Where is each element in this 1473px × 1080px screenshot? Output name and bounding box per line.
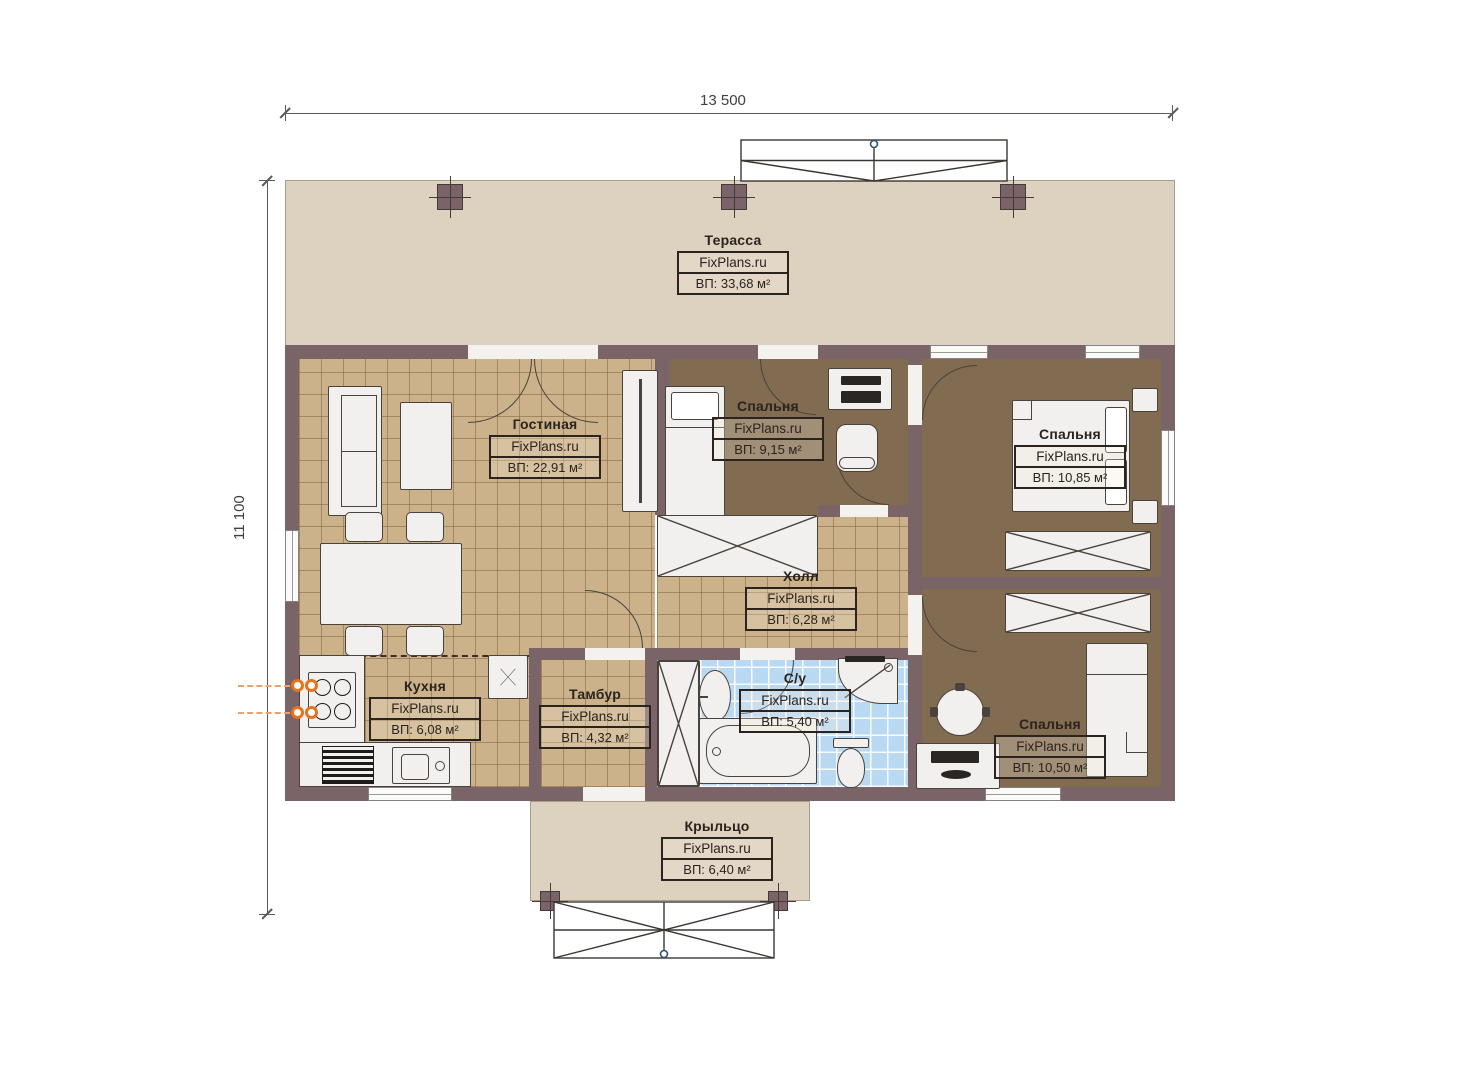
room-label-hall: Холл FixPlans.ru ВП: 6,28 м² xyxy=(736,568,866,631)
door-opening-bedroom2 xyxy=(908,365,922,425)
nightstand xyxy=(1132,388,1158,412)
window-bedroom2-top xyxy=(930,345,988,359)
room-label-bedroom1: Спальня FixPlans.ru ВП: 9,15 м² xyxy=(700,398,836,461)
room-label-bedroom2: Спальня FixPlans.ru ВП: 10,85 м² xyxy=(1002,426,1138,489)
desk-chair xyxy=(836,424,878,472)
nightstand xyxy=(1132,500,1158,524)
room-area: ВП: 33,68 м² xyxy=(679,274,787,293)
shaft-box xyxy=(657,660,700,787)
watermark: FixPlans.ru xyxy=(491,437,599,458)
watermark: FixPlans.ru xyxy=(714,419,822,440)
door-opening-living-terrace xyxy=(468,345,598,359)
porch-steps xyxy=(553,901,775,959)
wall-outer-top xyxy=(285,345,1175,359)
room-area: ВП: 10,85 м² xyxy=(1016,468,1124,487)
coffee-table xyxy=(400,402,452,490)
room-label-bedroom3: Спальня FixPlans.ru ВП: 10,50 м² xyxy=(985,716,1115,779)
toilet-bowl xyxy=(837,748,865,788)
room-name: С/у xyxy=(736,670,854,686)
room-name: Тамбур xyxy=(534,686,656,702)
dimension-height-label: 11 100 xyxy=(231,495,248,540)
door-opening-bedroom1-terrace xyxy=(758,345,818,359)
utility-connection-icon xyxy=(238,706,318,719)
watermark: FixPlans.ru xyxy=(741,691,849,712)
window-kitchen-bottom xyxy=(368,787,452,801)
wall-outer-right xyxy=(1161,345,1175,801)
door-opening-bedroom1-hall xyxy=(840,505,888,517)
room-area: ВП: 6,08 м² xyxy=(371,720,479,739)
dimension-left-line xyxy=(267,180,268,915)
dimension-width-label: 13 500 xyxy=(700,92,746,109)
wall-bedroom1-hall-stub xyxy=(888,505,908,517)
dimension-top-line xyxy=(285,113,1173,114)
room-label-tambour: Тамбур FixPlans.ru ВП: 4,32 м² xyxy=(534,686,656,749)
door-opening-porch xyxy=(583,787,645,801)
watermark: FixPlans.ru xyxy=(679,253,787,274)
dining-table xyxy=(320,543,462,625)
window-bedroom2-top-2 xyxy=(1085,345,1140,359)
room-area: ВП: 6,40 м² xyxy=(663,860,771,879)
watermark: FixPlans.ru xyxy=(747,589,855,610)
room-label-living: Гостиная FixPlans.ru ВП: 22,91 м² xyxy=(462,416,628,479)
door-opening-tambour-living xyxy=(585,648,645,660)
room-area: ВП: 22,91 м² xyxy=(491,458,599,477)
room-label-kitchen: Кухня FixPlans.ru ВП: 6,08 м² xyxy=(362,678,488,741)
room-label-bathroom: С/у FixPlans.ru ВП: 5,40 м² xyxy=(736,670,854,733)
room-name: Холл xyxy=(736,568,866,584)
wall-hall-bathroom-stub xyxy=(655,648,740,660)
terrace-steps xyxy=(740,139,1008,182)
terrace-column xyxy=(437,184,463,210)
room-name: Крыльцо xyxy=(642,818,792,834)
room-name: Спальня xyxy=(985,716,1115,732)
toilet-tank xyxy=(833,738,869,748)
door-opening-bedroom3 xyxy=(908,595,922,655)
kitchen-sink xyxy=(392,747,450,784)
room-label-terrace: Терасса FixPlans.ru ВП: 33,68 м² xyxy=(645,232,821,295)
room-label-porch: Крыльцо FixPlans.ru ВП: 6,40 м² xyxy=(642,818,792,881)
room-area: ВП: 5,40 м² xyxy=(741,712,849,731)
room-name: Спальня xyxy=(1002,426,1138,442)
room-area: ВП: 9,15 м² xyxy=(714,440,822,459)
terrace-column xyxy=(721,184,747,210)
utility-connection-icon xyxy=(238,679,318,692)
dining-chair xyxy=(406,626,444,656)
room-name: Кухня xyxy=(362,678,488,694)
dining-chair xyxy=(406,512,444,542)
door-opening-bathroom xyxy=(740,648,795,660)
wall-bedroom2-bedroom3 xyxy=(922,577,1161,589)
room-area: ВП: 6,28 м² xyxy=(747,610,855,629)
terrace-column xyxy=(1000,184,1026,210)
wardrobe xyxy=(1005,593,1151,633)
sofa xyxy=(328,386,382,516)
wall-tambour-living-stub xyxy=(541,648,585,660)
boiler-box xyxy=(488,655,528,699)
watermark: FixPlans.ru xyxy=(996,737,1104,758)
watermark: FixPlans.ru xyxy=(371,699,479,720)
room-area: ВП: 4,32 м² xyxy=(541,728,649,747)
watermark: FixPlans.ru xyxy=(663,839,771,860)
desk xyxy=(828,368,892,410)
room-name: Терасса xyxy=(645,232,821,248)
room-name: Спальня xyxy=(700,398,836,414)
window-bedroom3-bottom xyxy=(985,787,1061,801)
wall-bedroom1-hall-stub xyxy=(818,505,840,517)
kitchen-appliance xyxy=(322,746,374,784)
dining-chair xyxy=(345,626,383,656)
wardrobe xyxy=(1005,531,1151,571)
floor-plan-canvas: 13 500 11 100 xyxy=(0,0,1473,1080)
bathroom-sink xyxy=(699,670,731,722)
round-chair xyxy=(936,688,984,736)
watermark: FixPlans.ru xyxy=(541,707,649,728)
dining-chair xyxy=(345,512,383,542)
room-area: ВП: 10,50 м² xyxy=(996,758,1104,777)
watermark: FixPlans.ru xyxy=(1016,447,1124,468)
window-bedroom2-right xyxy=(1161,430,1175,506)
window-living-left xyxy=(285,530,299,602)
room-name: Гостиная xyxy=(462,416,628,432)
